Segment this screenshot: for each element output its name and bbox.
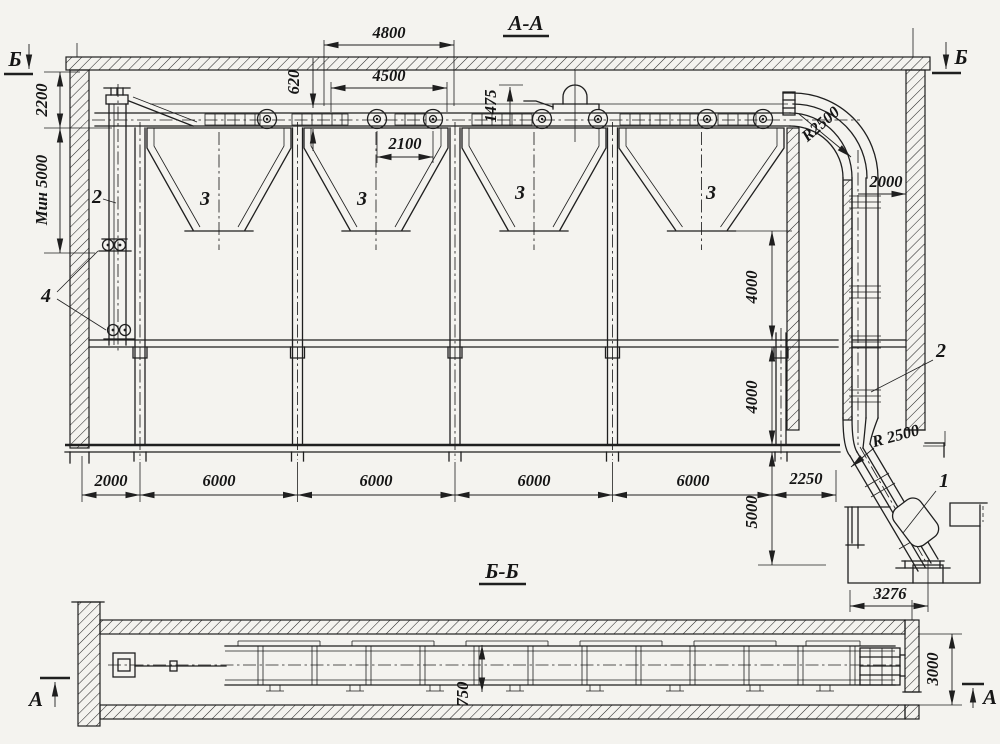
dim-2100: 2100: [388, 134, 422, 153]
dim-4500: 4500: [372, 66, 406, 85]
marker-a-left-letter: А: [27, 687, 43, 711]
bb-view: Б-Б 3000: [27, 559, 997, 726]
column: [133, 122, 147, 461]
dim-3000: 3000: [923, 653, 942, 687]
aa-left-elevator: [99, 84, 197, 352]
cut-marker-a-right: А: [962, 684, 997, 709]
part-label-3: 3: [514, 182, 525, 204]
dim-4000-lower: 4000: [742, 381, 761, 415]
dim-1475: 1475: [481, 90, 500, 123]
dim-620: 620: [284, 70, 303, 95]
dim-bay-6000: 6000: [360, 471, 393, 490]
drive-unit: [889, 494, 943, 551]
dim-3276: 3276: [873, 584, 908, 603]
aa-overhead-conveyor: [92, 70, 860, 142]
part-label-3: 3: [705, 182, 716, 204]
marker-b-right-letter: Б: [953, 45, 967, 69]
dim-min5000: Мин 5000: [32, 155, 51, 226]
dim-4800: 4800: [372, 23, 406, 42]
column: [774, 328, 788, 461]
dim-2000-right: 2000: [869, 172, 903, 191]
column: [606, 122, 620, 461]
hopper: [462, 128, 606, 250]
dim-bay-6000: 6000: [203, 471, 236, 490]
svg-text:1: 1: [939, 470, 949, 492]
marker-b-left-letter: Б: [7, 47, 21, 71]
dim-750: 750: [453, 682, 472, 707]
svg-text:2: 2: [935, 340, 946, 362]
part-label-2-left: 2: [91, 186, 116, 208]
bb-conveyor: [108, 641, 905, 691]
blueprint-page: 4800 4500 620 2100 1475 2200 Мин 5000 20…: [0, 0, 1000, 744]
part-label-3: 3: [356, 188, 367, 210]
dim-bay-2000: 2000: [94, 471, 128, 490]
dim-bay-6000: 6000: [677, 471, 710, 490]
marker-a-right-letter: А: [981, 685, 997, 709]
svg-text:2: 2: [91, 186, 102, 208]
part-label-3: 3: [199, 188, 210, 210]
dim-2200: 2200: [32, 84, 51, 118]
aa-hoppers: [147, 128, 784, 250]
cut-marker-b-left: Б: [4, 44, 33, 74]
bb-drive-block: [860, 648, 905, 685]
title-section-aa: А-А: [506, 11, 543, 35]
cut-marker-b-right: Б: [932, 42, 968, 73]
aa-labels: А-А Б Б 1 2 2 3 3 3 3 4: [4, 11, 968, 533]
cut-marker-a-left: А: [27, 678, 70, 711]
dim-4000-upper: 4000: [742, 271, 761, 305]
title-section-bb: Б-Б: [484, 559, 519, 583]
dim-bay-2250: 2250: [789, 469, 823, 488]
dim-r2500-bottom: R 2500: [869, 420, 921, 451]
column: [448, 122, 462, 461]
svg-text:4: 4: [40, 285, 51, 307]
hopper: [304, 128, 448, 250]
column: [291, 122, 305, 461]
dim-5000-pit: 5000: [742, 496, 761, 529]
carriage-dome: [524, 70, 599, 142]
hopper: [619, 128, 784, 250]
dim-bay-6000: 6000: [518, 471, 551, 490]
hopper: [147, 128, 291, 250]
drawing-canvas: 4800 4500 620 2100 1475 2200 Мин 5000 20…: [0, 0, 1000, 744]
aa-floors: [65, 340, 906, 452]
aa-building-shell: [66, 28, 944, 463]
aa-columns: [133, 122, 788, 461]
